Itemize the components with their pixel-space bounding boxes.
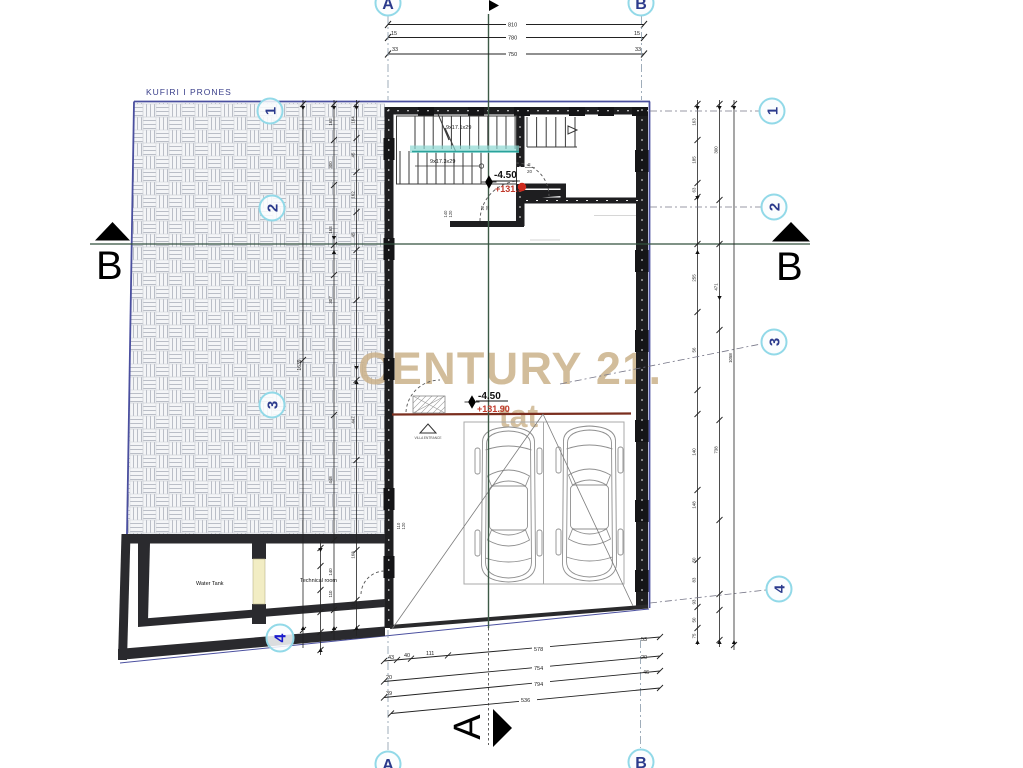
svg-text:1: 1 <box>262 107 279 115</box>
svg-text:536: 536 <box>521 698 530 704</box>
svg-text:20: 20 <box>485 205 490 210</box>
svg-text:163: 163 <box>692 118 697 126</box>
svg-text:750: 750 <box>508 52 517 58</box>
svg-text:3: 3 <box>766 338 783 346</box>
svg-text:307: 307 <box>328 296 333 304</box>
svg-text:2: 2 <box>766 203 783 211</box>
svg-text:4: 4 <box>273 633 290 642</box>
svg-text:111: 111 <box>426 651 434 657</box>
svg-text:148: 148 <box>692 501 697 509</box>
svg-text:50: 50 <box>692 617 697 622</box>
svg-text:33: 33 <box>392 47 398 53</box>
svg-text:2: 2 <box>264 204 281 212</box>
svg-text:83: 83 <box>692 577 697 582</box>
svg-text:162: 162 <box>328 118 333 126</box>
svg-text:794: 794 <box>534 682 543 688</box>
svg-text:162: 162 <box>351 191 356 199</box>
svg-text:163: 163 <box>328 226 333 234</box>
svg-text:A: A <box>447 714 489 740</box>
svg-text:140: 140 <box>328 568 333 576</box>
svg-text:4: 4 <box>771 584 788 593</box>
svg-text:300: 300 <box>714 146 719 154</box>
svg-text:Water Tank: Water Tank <box>196 581 224 587</box>
svg-text:KUFIRI I PRONES: KUFIRI I PRONES <box>146 87 232 97</box>
svg-text:1: 1 <box>764 107 781 115</box>
svg-text:45: 45 <box>351 152 356 157</box>
svg-text:-4.50: -4.50 <box>478 391 501 402</box>
svg-text:9x17.3x29: 9x17.3x29 <box>430 159 455 165</box>
svg-text:20: 20 <box>386 675 392 681</box>
svg-text:+131.90: +131.90 <box>477 404 510 414</box>
svg-text:3: 3 <box>264 401 281 409</box>
svg-text:15: 15 <box>634 31 640 37</box>
svg-text:56: 56 <box>692 347 697 352</box>
svg-text:9x17.1x29: 9x17.1x29 <box>446 125 471 131</box>
svg-text:B: B <box>635 755 647 768</box>
svg-text:120: 120 <box>448 210 453 218</box>
svg-text:Technical room: Technical room <box>300 578 337 584</box>
svg-text:255: 255 <box>692 274 697 282</box>
svg-text:20: 20 <box>641 655 647 661</box>
svg-text:738: 738 <box>714 446 719 454</box>
svg-text:780: 780 <box>508 36 517 42</box>
svg-text:46: 46 <box>643 670 649 676</box>
svg-text:20: 20 <box>527 169 533 174</box>
svg-text:VILLA ENTRANCE: VILLA ENTRANCE <box>415 436 442 440</box>
svg-text:33: 33 <box>635 47 641 53</box>
svg-text:93: 93 <box>692 599 697 604</box>
svg-text:300: 300 <box>328 161 333 169</box>
svg-text:15: 15 <box>391 31 397 37</box>
svg-text:45: 45 <box>351 232 356 237</box>
svg-text:471: 471 <box>714 283 719 291</box>
svg-text:A: A <box>382 0 394 13</box>
svg-text:120: 120 <box>401 522 406 530</box>
svg-text:43: 43 <box>388 655 394 661</box>
svg-text:CENTURY 21.: CENTURY 21. <box>358 343 664 394</box>
svg-text:53: 53 <box>641 637 647 643</box>
svg-text:75: 75 <box>692 633 697 638</box>
svg-text:448: 448 <box>328 476 333 484</box>
svg-text:39: 39 <box>386 691 392 697</box>
svg-text:185: 185 <box>692 156 697 164</box>
svg-text:B: B <box>776 245 803 289</box>
svg-text:810: 810 <box>508 23 517 29</box>
svg-text:A: A <box>382 757 394 768</box>
svg-text:1058: 1058 <box>728 353 733 363</box>
svg-text:140: 140 <box>692 448 697 456</box>
svg-text:-4.50: -4.50 <box>494 170 517 181</box>
svg-text:110: 110 <box>328 590 333 598</box>
svg-text:B: B <box>635 0 647 13</box>
svg-text:164: 164 <box>351 116 356 124</box>
svg-text:447: 447 <box>351 416 356 424</box>
svg-text:578: 578 <box>534 647 543 653</box>
svg-text:63: 63 <box>692 187 697 192</box>
svg-text:B: B <box>96 244 123 288</box>
svg-text:754: 754 <box>534 666 543 672</box>
svg-text:40: 40 <box>404 653 410 659</box>
